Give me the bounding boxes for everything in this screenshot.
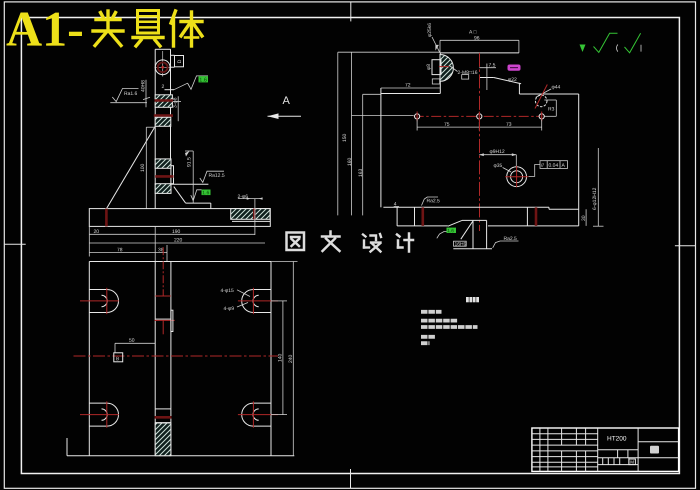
- svg-text:Ra2.5: Ra2.5: [426, 198, 440, 204]
- svg-text:2-M8□16: 2-M8□16: [457, 70, 477, 76]
- svg-text:96: 96: [474, 36, 480, 42]
- svg-text:91.5: 91.5: [187, 157, 193, 167]
- svg-text:1.6: 1.6: [199, 78, 207, 84]
- svg-text:3-φ8: 3-φ8: [173, 97, 179, 108]
- svg-text:50: 50: [129, 338, 135, 344]
- svg-text:M: M: [630, 460, 634, 465]
- svg-text:75: 75: [444, 122, 450, 128]
- svg-text:Ra12.5: Ra12.5: [208, 173, 224, 179]
- svg-text:Ra1.6: Ra1.6: [124, 91, 138, 97]
- svg-text:78: 78: [117, 247, 123, 253]
- svg-text:72: 72: [405, 83, 411, 89]
- svg-text:4-φ15: 4-φ15: [220, 288, 233, 294]
- svg-text:0.04: 0.04: [548, 163, 558, 169]
- svg-text:D: D: [177, 59, 183, 63]
- svg-text:163: 163: [358, 168, 364, 177]
- svg-text:φ25k6: φ25k6: [427, 23, 433, 37]
- svg-text:30: 30: [581, 215, 587, 221]
- svg-text:R3: R3: [548, 107, 555, 113]
- svg-text:Ra2.5: Ra2.5: [503, 236, 517, 242]
- svg-text:φ8: φ8: [426, 64, 432, 70]
- svg-text:150: 150: [342, 133, 348, 142]
- svg-text:φ35: φ35: [493, 163, 502, 169]
- svg-text:2-φ6: 2-φ6: [237, 194, 248, 200]
- svg-text:6-φ12H12: 6-φ12H12: [592, 187, 598, 210]
- svg-text:100: 100: [140, 163, 146, 172]
- svg-text:20: 20: [93, 229, 99, 235]
- svg-text:A: A: [282, 95, 290, 107]
- svg-text:φ22: φ22: [508, 77, 517, 83]
- svg-text:2: 2: [161, 84, 164, 90]
- svg-text:73: 73: [506, 122, 512, 128]
- svg-text:190: 190: [172, 229, 181, 235]
- svg-text:1.6: 1.6: [447, 228, 454, 234]
- svg-text:160: 160: [347, 157, 353, 166]
- svg-text:16H9: 16H9: [454, 242, 466, 248]
- svg-text:140: 140: [278, 353, 284, 362]
- svg-text:A1-: A1-: [6, 1, 84, 57]
- svg-text:HT200: HT200: [607, 436, 627, 443]
- svg-text:240: 240: [288, 354, 294, 363]
- svg-text:40H8: 40H8: [141, 80, 147, 92]
- svg-text:1.6: 1.6: [202, 190, 209, 196]
- svg-text:φ9H12: φ9H12: [489, 149, 504, 155]
- svg-text:φ44: φ44: [551, 85, 560, 91]
- svg-text:220: 220: [174, 238, 183, 244]
- svg-text:4-φ9: 4-φ9: [223, 306, 234, 312]
- svg-text:A □: A □: [469, 30, 476, 36]
